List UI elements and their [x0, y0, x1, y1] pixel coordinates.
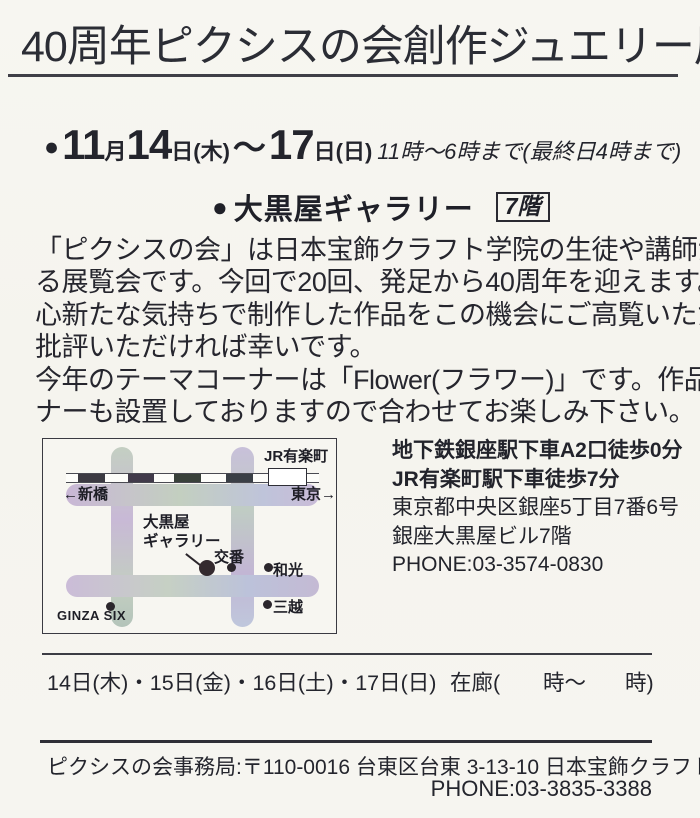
- intro-line: 心新たな気持ちで制作した作品をこの機会にご高覧いただき、ご: [35, 299, 695, 331]
- access-map: JR有楽町 ←新橋 東京→ 大黒屋 ギャラリー 交番 和光 三越 GINZA S…: [42, 438, 337, 634]
- railway-segment: [78, 474, 105, 482]
- month-unit: 月: [105, 134, 127, 166]
- access-line-address2: 銀座大黒屋ビル7階: [392, 523, 683, 552]
- intro-line: 批評いただければ幸いです。: [35, 331, 695, 363]
- venue-line: ● 大黒屋ギャラリー 7階: [212, 186, 550, 228]
- page-title: 40周年ピクシスの会創作ジュエリー展: [21, 22, 689, 72]
- label-toward-shimbashi: ←新橋: [63, 483, 108, 504]
- access-line-subway: 地下鉄銀座駅下車A2口徒歩0分: [392, 437, 683, 466]
- attendance-zairo-mid: 時〜: [543, 666, 586, 697]
- railway-segment: [128, 474, 154, 482]
- bullet-icon: ●: [44, 133, 59, 162]
- start-day-number: 14: [127, 121, 172, 169]
- footer-phone: PHONE:03-3835-3388: [431, 776, 652, 802]
- gallery-label-line1: 大黒屋: [143, 514, 190, 531]
- label-mitsukoshi: 三越: [273, 596, 303, 617]
- start-day-unit: 日(木): [171, 134, 230, 166]
- railway-segment: [174, 474, 201, 482]
- intro-line: 今年のテーマコーナーは「Flower(フラワー)」です。作品販売コー: [35, 364, 695, 396]
- flyer-page: 40周年ピクシスの会創作ジュエリー展 ● 11 月 14 日(木) 〜 17 日…: [0, 0, 700, 818]
- access-line-jr: JR有楽町駅下車徒歩7分: [392, 466, 683, 495]
- tilde-range: 〜: [233, 121, 266, 169]
- month-number: 11: [62, 121, 104, 169]
- gallery-label-line2: ギャラリー: [143, 533, 221, 550]
- access-info: 地下鉄銀座駅下車A2口徒歩0分 JR有楽町駅下車徒歩7分 東京都中央区銀座5丁目…: [392, 437, 683, 580]
- floor-badge: 7階: [496, 192, 550, 222]
- label-ginza-six: GINZA SIX: [57, 608, 126, 623]
- intro-line: る展覧会です。今回で20回、発足から40周年を迎えます。: [35, 266, 695, 298]
- end-day-number: 17: [269, 121, 314, 169]
- opening-hours: 11時〜6時まで(最終日4時まで): [377, 134, 681, 166]
- mitsukoshi-dot: [263, 600, 272, 609]
- end-day-unit: 日(日): [314, 134, 373, 166]
- wako-dot: [264, 563, 273, 572]
- access-line-address1: 東京都中央区銀座5丁目7番6号: [392, 494, 683, 523]
- attendance-zairo-open: 在廊(: [450, 666, 500, 697]
- label-wako: 和光: [273, 559, 303, 580]
- intro-paragraph: 「ピクシスの会」は日本宝飾クラフト学院の生徒や講師が開催す る展覧会です。今回で…: [35, 234, 695, 428]
- label-toward-tokyo: 東京→: [291, 483, 336, 504]
- attendance-days: 14日(木)・15日(金)・16日(土)・17日(日): [47, 666, 436, 697]
- ginza-six-dot: [106, 602, 115, 611]
- divider-thick: [40, 740, 652, 743]
- attendance-zairo-close: 時): [625, 666, 654, 697]
- title-underline: [8, 74, 678, 77]
- label-daikokuya-gallery: 大黒屋 ギャラリー: [143, 513, 221, 551]
- police-box-dot: [227, 563, 236, 572]
- label-jr-yurakucho: JR有楽町: [264, 445, 328, 466]
- intro-line: ナーも設置しておりますので合わせてお楽しみ下さい。: [35, 396, 695, 428]
- intro-line: 「ピクシスの会」は日本宝飾クラフト学院の生徒や講師が開催す: [35, 234, 695, 266]
- divider-thin: [42, 653, 652, 655]
- access-line-phone: PHONE:03-3574-0830: [392, 551, 683, 580]
- exhibition-dates: ● 11 月 14 日(木) 〜 17 日(日) 11時〜6時まで(最終日4時ま…: [44, 121, 681, 169]
- venue-name: 大黒屋ギャラリー: [234, 186, 474, 228]
- railway-segment: [226, 474, 253, 482]
- gallery-dot: [199, 560, 215, 576]
- bullet-icon: ●: [212, 192, 228, 223]
- railway-line: [66, 473, 319, 483]
